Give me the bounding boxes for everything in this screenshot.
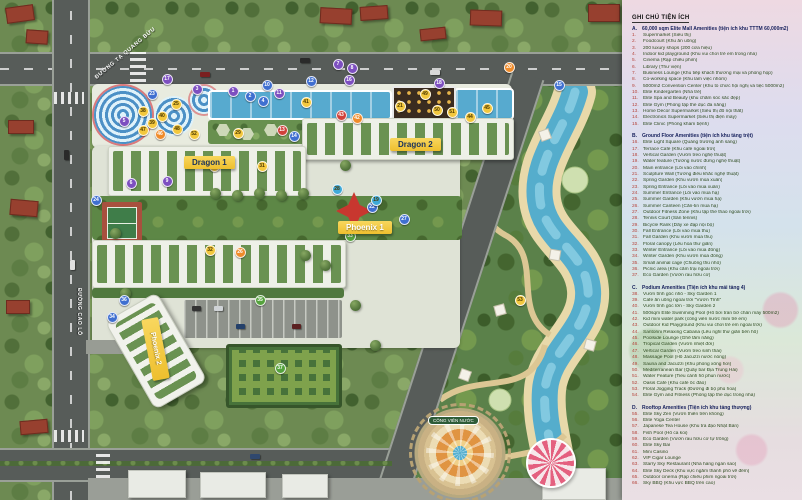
label-phoenix-1: Phoenix 1 <box>338 221 392 234</box>
legend-section-heading: C.Podium Amenities (Tiện ích khu mái tần… <box>632 285 796 292</box>
map-marker-16: 16 <box>344 75 355 86</box>
map-marker-27: 27 <box>399 214 410 225</box>
map-marker-20: 20 <box>504 62 515 73</box>
map-marker-13: 13 <box>277 125 288 136</box>
map-marker-12: 12 <box>306 76 317 87</box>
map-marker-17: 17 <box>162 74 173 85</box>
map-marker-35: 35 <box>255 295 266 306</box>
map-marker-4: 4 <box>258 96 269 107</box>
map-marker-25: 25 <box>171 99 182 110</box>
map-marker-23: 23 <box>147 89 158 100</box>
map-marker-24: 24 <box>91 195 102 206</box>
legend-section-D: D.Rooftop Amenities (Tiện ích khu tầng t… <box>632 405 796 488</box>
legend-section-C: C.Podium Amenities (Tiện ích khu mái tần… <box>632 285 796 400</box>
map-marker-26: 26 <box>235 247 246 258</box>
legend-item-15: 15.Elite Clinic (Phòng khám bệnh) <box>632 122 796 128</box>
map-marker-15: 15 <box>554 80 565 91</box>
legend-section-B: B.Ground Floor Amenities (tiện ích khu t… <box>632 133 796 280</box>
masterplan-screenshot: 1723311012167818201538403947464852525414… <box>0 0 802 500</box>
map-marker-44: 44 <box>465 112 476 123</box>
label-dragon-2: Dragon 2 <box>390 138 441 151</box>
legend-item-54: 54.Elite Gym and Fitness (Phòng tập thể … <box>632 393 796 399</box>
map-marker-47: 47 <box>138 125 149 136</box>
map-marker-14: 14 <box>289 131 300 142</box>
legend-title: GHI CHÚ TIỆN ÍCH <box>632 15 689 23</box>
map-marker-40: 40 <box>157 111 168 122</box>
map-marker-46: 46 <box>155 129 166 140</box>
map-marker-10: 10 <box>262 80 273 91</box>
map-marker-7: 7 <box>333 59 344 70</box>
legend-panel: GHI CHÚ TIỆN ÍCH A.60,000 sqm Elite Mall… <box>622 0 802 500</box>
map-marker-32: 32 <box>205 245 216 256</box>
map-marker-2: 2 <box>245 91 256 102</box>
legend-section-heading: A.60,000 sqm Elite Mall Amenities (tiện … <box>632 26 796 33</box>
map-marker-5: 5 <box>119 116 130 127</box>
map-marker-38: 38 <box>138 106 149 117</box>
legend-section-A: A.60,000 sqm Elite Mall Amenities (tiện … <box>632 26 796 128</box>
map-marker-18: 18 <box>434 78 445 89</box>
map-marker-41: 41 <box>301 97 312 108</box>
map-marker-51: 51 <box>447 107 458 118</box>
label-dragon-1: Dragon 1 <box>184 156 235 169</box>
map-marker-31: 31 <box>257 161 268 172</box>
legend-item-37: 37.Eco Garden (Vườn rau hữu cơ) <box>632 273 796 279</box>
map-marker-21: 21 <box>395 101 406 112</box>
map-marker-52: 52 <box>189 129 200 140</box>
legend-section-heading: B.Ground Floor Amenities (tiện ích khu t… <box>632 133 796 140</box>
map-marker-37: 37 <box>275 363 286 374</box>
legend-section-heading: D.Rooftop Amenities (Tiện ích khu tầng t… <box>632 405 796 412</box>
legend-sections: A.60,000 sqm Elite Mall Amenities (tiện … <box>632 26 796 488</box>
map-marker-49: 49 <box>420 89 431 100</box>
street-label-cao-lo: ĐƯỜNG CAO LỖ <box>76 288 82 336</box>
map-marker-53: 53 <box>515 295 526 306</box>
map-marker-19: 19 <box>371 195 382 206</box>
map-marker-8: 8 <box>347 63 358 74</box>
map-marker-3: 3 <box>192 84 203 95</box>
map-marker-36: 36 <box>119 295 130 306</box>
map-marker-43: 43 <box>336 110 347 121</box>
map-marker-42: 42 <box>352 113 363 124</box>
plaza-banner-label: CÔNG VIÊN NƯỚC <box>428 416 479 425</box>
map-marker-9: 9 <box>162 176 173 187</box>
map-marker-28: 28 <box>332 184 343 195</box>
map-marker-45: 45 <box>482 103 493 114</box>
map-marker-11: 11 <box>274 88 285 99</box>
map-marker-1: 1 <box>228 86 239 97</box>
map-marker-6: 6 <box>126 178 137 189</box>
map-marker-34: 34 <box>107 312 118 323</box>
map-marker-29: 29 <box>233 128 244 139</box>
map-marker-50: 50 <box>432 105 443 116</box>
map-marker-48: 48 <box>172 124 183 135</box>
legend-item-66: 66.Sky BBQ (Khu vực BBQ trên cao) <box>632 481 796 487</box>
